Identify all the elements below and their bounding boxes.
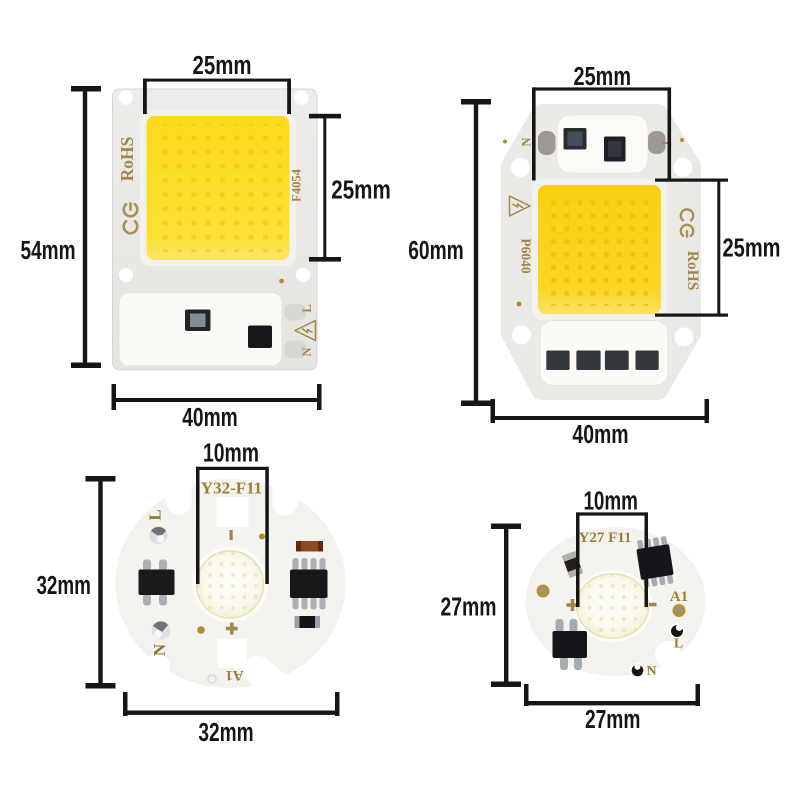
svg-text:F4054: F4054 bbox=[289, 168, 303, 201]
svg-text:32mm: 32mm bbox=[198, 719, 253, 747]
svg-text:A1: A1 bbox=[670, 589, 688, 605]
svg-text:10mm: 10mm bbox=[203, 440, 259, 468]
svg-text:Y32-F11: Y32-F11 bbox=[201, 479, 262, 498]
svg-text:L: L bbox=[146, 509, 165, 520]
svg-text:N: N bbox=[520, 137, 534, 146]
svg-text:L: L bbox=[660, 137, 674, 145]
svg-text:25mm: 25mm bbox=[574, 63, 632, 91]
svg-text:RoHS: RoHS bbox=[684, 251, 701, 291]
svg-text:60mm: 60mm bbox=[408, 237, 464, 265]
svg-text:RoHS: RoHS bbox=[117, 137, 137, 182]
svg-text:32mm: 32mm bbox=[36, 572, 91, 600]
svg-text:27mm: 27mm bbox=[585, 706, 641, 734]
svg-text:40mm: 40mm bbox=[572, 421, 628, 449]
svg-text:27mm: 27mm bbox=[441, 594, 497, 622]
svg-text:10mm: 10mm bbox=[583, 488, 638, 516]
svg-text:N: N bbox=[646, 664, 656, 679]
svg-text:54mm: 54mm bbox=[21, 237, 76, 265]
svg-text:L: L bbox=[300, 304, 314, 312]
svg-text:P6040: P6040 bbox=[519, 238, 534, 273]
svg-text:N: N bbox=[150, 643, 169, 656]
svg-text:25mm: 25mm bbox=[723, 235, 781, 263]
svg-text:Y27 F11: Y27 F11 bbox=[579, 530, 632, 546]
svg-text:25mm: 25mm bbox=[193, 52, 252, 80]
svg-text:L: L bbox=[674, 637, 683, 652]
svg-text:N: N bbox=[300, 347, 314, 356]
svg-text:40mm: 40mm bbox=[182, 404, 238, 432]
svg-text:25mm: 25mm bbox=[331, 177, 391, 205]
svg-text:A1: A1 bbox=[225, 667, 243, 683]
